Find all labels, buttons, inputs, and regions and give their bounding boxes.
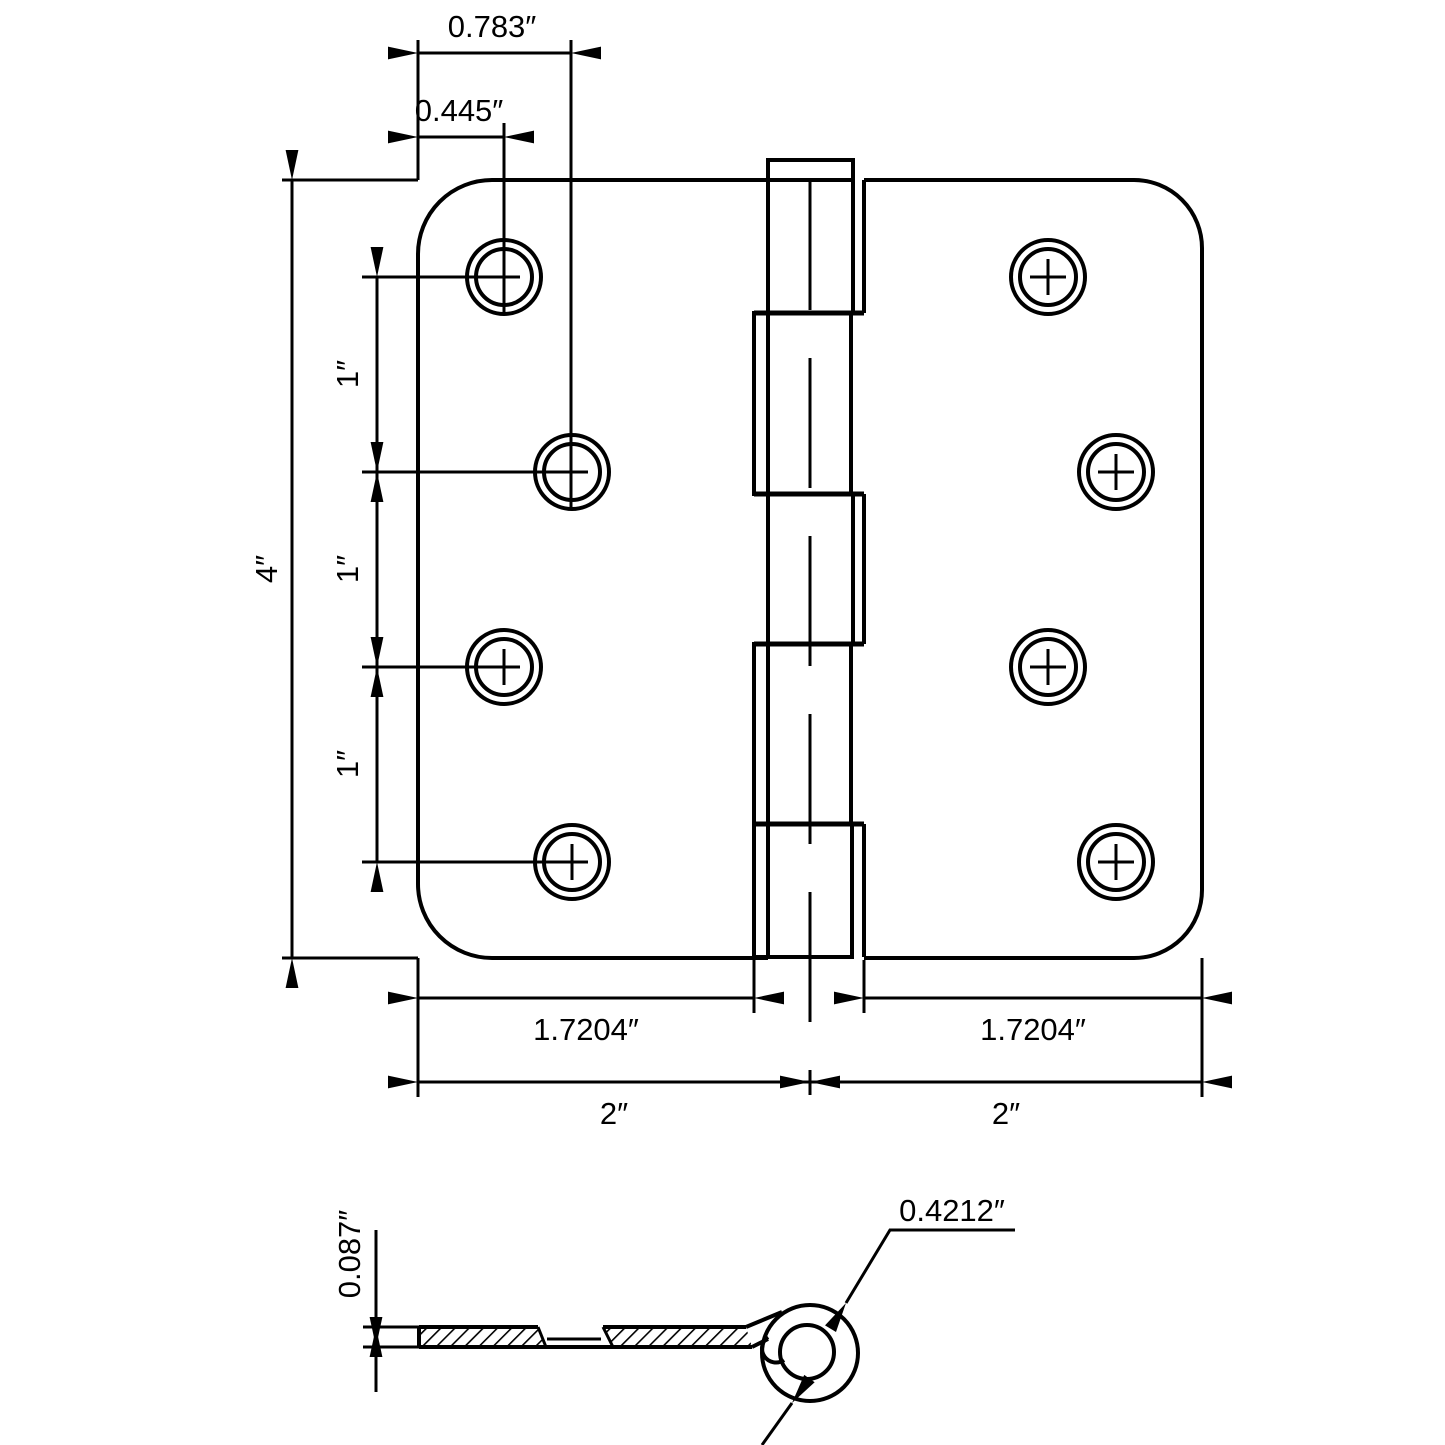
dim-label-top-inner: 0.445″ (415, 93, 504, 128)
leaf-section-hatch-left (419, 1327, 546, 1347)
top-view-dimensions: 0.783″ 0.445″ 4″ 1″ 1″ 1″ 1.7204″ 1.7204… (249, 9, 1202, 1131)
screw-hole (1011, 240, 1085, 314)
leaf-section-hatch-right (603, 1327, 752, 1347)
dim-label-spacing-2: 1″ (330, 555, 365, 583)
leader-line-bottom (762, 1403, 792, 1445)
dim-label-leaf-left: 1.7204″ (533, 1012, 639, 1047)
barrel-pin-hole (780, 1325, 834, 1379)
dim-label-leaf-right: 1.7204″ (980, 1012, 1086, 1047)
screw-hole (1079, 825, 1153, 899)
dim-label-spacing-3: 1″ (330, 750, 365, 778)
barrel-top-cap (768, 160, 853, 180)
screw-hole (1011, 630, 1085, 704)
dim-label-thickness: 0.087″ (332, 1210, 367, 1299)
countersink-hole (538, 1327, 613, 1347)
dim-label-top-outer: 0.783″ (448, 9, 537, 44)
hinge-barrel (754, 160, 864, 1095)
profile-view: 0.087″ 0.4212″ (332, 1193, 1015, 1445)
dim-label-half-left: 2″ (600, 1096, 628, 1131)
top-view (418, 160, 1202, 1095)
screw-hole (1079, 435, 1153, 509)
dim-label-half-right: 2″ (992, 1096, 1020, 1131)
hinge-drawing-svg: 0.783″ 0.445″ 4″ 1″ 1″ 1″ 1.7204″ 1.7204… (0, 0, 1445, 1445)
dim-label-barrel-diameter: 0.4212″ (899, 1193, 1005, 1228)
dim-label-height: 4″ (249, 555, 284, 583)
right-leaf-outline (864, 180, 1202, 958)
barrel-loop-outer (762, 1305, 858, 1401)
hinge-dimension-diagram: 0.783″ 0.445″ 4″ 1″ 1″ 1″ 1.7204″ 1.7204… (0, 0, 1445, 1445)
dim-label-spacing-1: 1″ (330, 360, 365, 388)
leader-line-barrel-diameter (846, 1230, 1015, 1303)
